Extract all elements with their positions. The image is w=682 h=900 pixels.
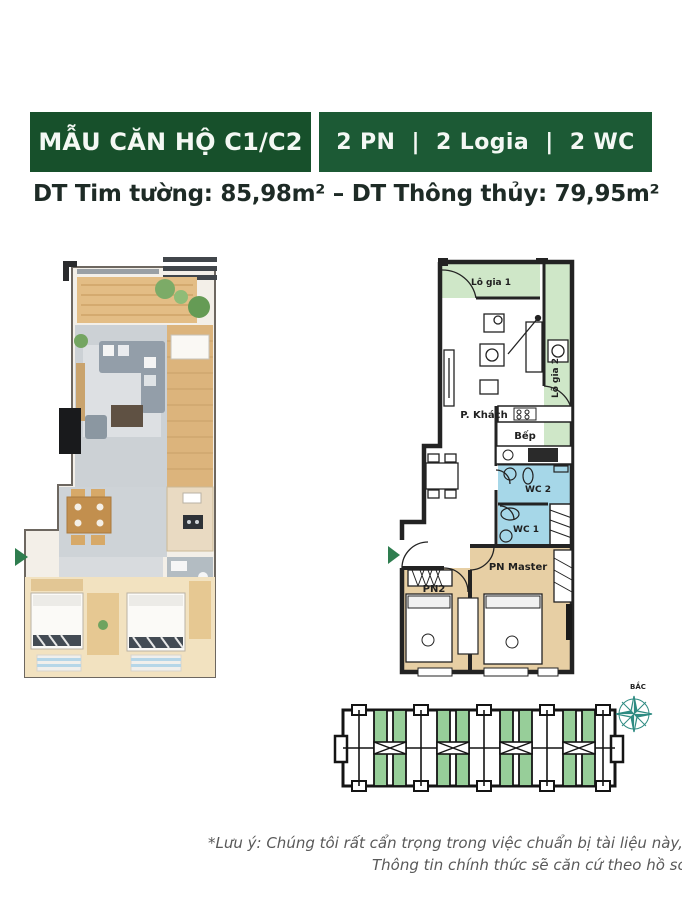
area-value-1: 85,98m² [220, 181, 325, 207]
label-logia1: Lô gia 1 [471, 277, 511, 288]
area-line: DT Tim tường: 85,98m² – DT Thông thủy: 7… [33, 181, 659, 207]
floor-plan-2d: Lô gia 1 Lô gia 2 P. Khách Bếp WC 2 WC 1… [388, 258, 586, 682]
entrance-arrow-2d [388, 546, 400, 564]
plant [155, 279, 175, 299]
plant [188, 296, 210, 318]
label-pn2: PN2 [423, 584, 446, 595]
compass: BẮC [608, 680, 662, 740]
apartment-specs: 2 PN | 2 Logia | 2 WC [319, 112, 652, 172]
rug-master [131, 655, 181, 671]
disclaimer-line-2: Thông tin chính thức sẽ căn cứ theo hồ s… [372, 856, 682, 874]
label-wc1: WC 1 [513, 525, 539, 535]
bed-master [127, 593, 185, 651]
armchair [85, 415, 107, 439]
label-bep: Bếp [514, 429, 536, 442]
compass-north-label: BẮC [630, 681, 646, 691]
area-label-1: DT Tim tường: [33, 181, 220, 207]
sink [183, 493, 201, 503]
duct [550, 504, 572, 546]
label-logia2: Lô gia 2 [550, 358, 561, 398]
wardrobe [31, 579, 83, 591]
hallway-floor [59, 557, 163, 577]
shaft [59, 408, 81, 454]
plan-3d-body [15, 257, 217, 677]
area-label-2: DT Thông thủy: [352, 181, 555, 207]
apartment-model-title: MẪU CĂN HỘ C1/C2 [30, 112, 311, 172]
compass-rose-icon [616, 696, 652, 732]
ac-ledge [566, 604, 572, 640]
label-wc2: WC 2 [525, 485, 551, 495]
label-khach: P. Khách [460, 409, 507, 421]
floor-plan-3d [15, 245, 230, 690]
dining-set-2d [426, 454, 458, 498]
wardrobe-master [189, 581, 211, 639]
area-separator: – [325, 181, 352, 207]
cooktop [183, 515, 203, 529]
area-value-2: 79,95m² [555, 181, 660, 207]
cabinet [171, 335, 209, 359]
coffee-table [111, 405, 143, 427]
disclaimer-line-1: *Lưu ý: Chúng tôi rất cẩn trọng trong vi… [208, 834, 682, 852]
rug-2 [37, 655, 81, 671]
building-key-plan [333, 696, 625, 800]
bed-2 [31, 593, 83, 649]
brochure-page: MẪU CĂN HỘ C1/C2 2 PN | 2 Logia | 2 WC D… [0, 0, 682, 900]
label-master: PN Master [489, 562, 547, 573]
wc2-area [498, 464, 572, 504]
